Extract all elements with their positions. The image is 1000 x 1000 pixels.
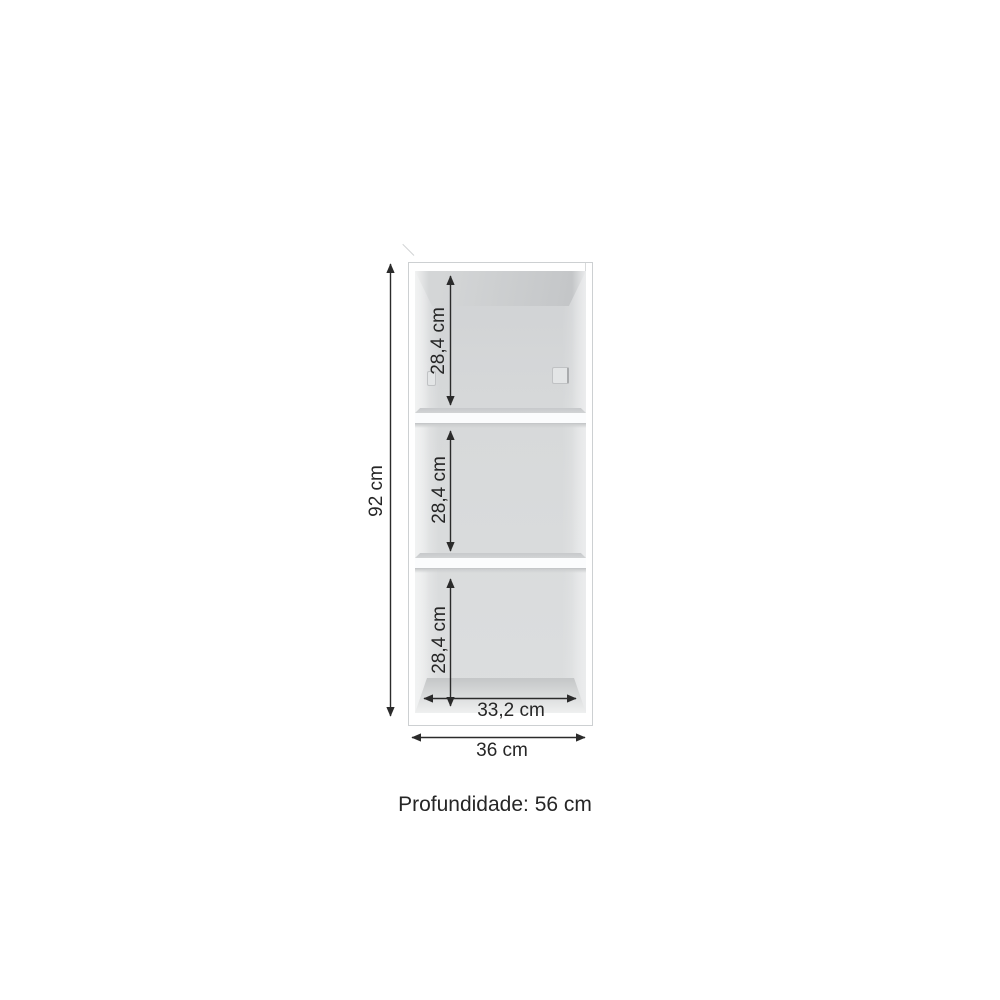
- compartment-middle-dimension-label: 28,4 cm: [429, 440, 451, 540]
- outer-width-dimension-label: 36 cm: [442, 740, 562, 762]
- depth-dimension-label: Profundidade: 56 cm: [345, 793, 645, 817]
- dimension-diagram-canvas: 92 cm 28,4 cm 28,4 cm 28,4 cm 33,2 cm 36…: [0, 0, 1000, 1000]
- height-dimension-label: 92 cm: [366, 441, 388, 541]
- compartment-bottom-dimension-label: 28,4 cm: [429, 590, 451, 690]
- dimension-arrows-layer: [0, 0, 1000, 1000]
- inner-width-dimension-label: 33,2 cm: [451, 700, 571, 722]
- compartment-top-dimension-label: 28,4 cm: [428, 291, 450, 391]
